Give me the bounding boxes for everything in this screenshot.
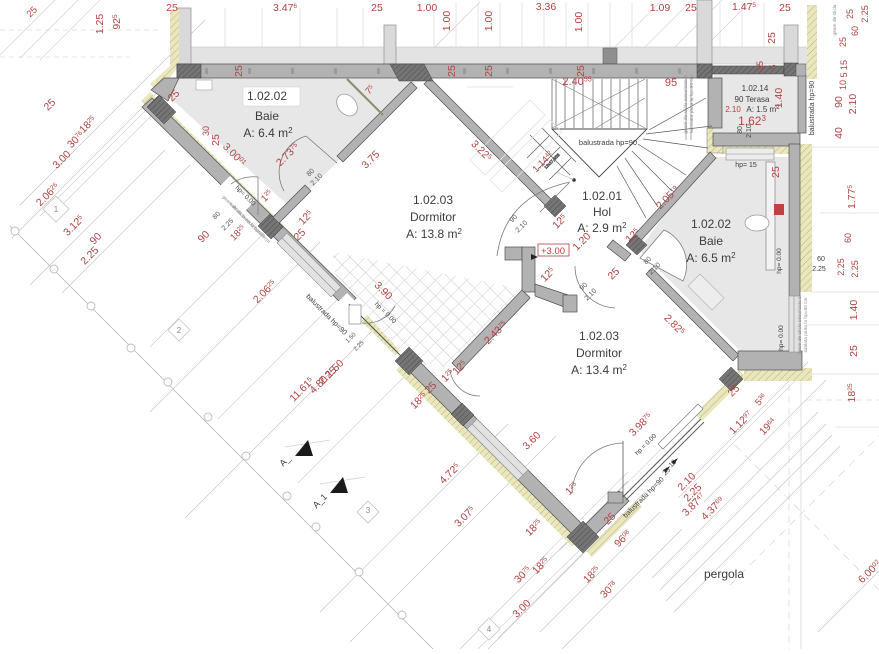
svg-text:A: 6.4 m2: A: 6.4 m2: [243, 126, 293, 140]
svg-text:25: 25: [838, 37, 848, 47]
svg-text:1.02.02: 1.02.02: [691, 217, 731, 231]
svg-text:sablata pana la hp=90 cm: sablata pana la hp=90 cm: [803, 297, 809, 352]
svg-text:balustrada hp=90: balustrada hp=90: [579, 138, 637, 147]
svg-text:1.25: 1.25: [94, 14, 106, 35]
svg-text:Baie: Baie: [255, 109, 279, 123]
svg-text:1.02.03: 1.02.03: [579, 329, 619, 343]
svg-text:60: 60: [850, 26, 860, 36]
svg-text:1.00: 1.00: [573, 12, 585, 33]
svg-text:geam de sticla securizata si: geam de sticla securizata si: [683, 75, 689, 134]
svg-text:Baie: Baie: [699, 234, 723, 248]
svg-text:95: 95: [665, 77, 677, 89]
svg-text:60: 60: [843, 233, 853, 243]
svg-text:2.10: 2.10: [847, 94, 859, 115]
svg-text:+3.00: +3.00: [541, 246, 565, 257]
svg-text:2.10: 2.10: [725, 105, 741, 114]
svg-text:1.00: 1.00: [441, 11, 453, 32]
svg-text:40: 40: [833, 127, 845, 139]
svg-text:1: 1: [54, 205, 59, 214]
svg-text:2.25: 2.25: [860, 5, 870, 23]
svg-text:pergola: pergola: [704, 567, 744, 581]
svg-text:1.00: 1.00: [417, 2, 438, 14]
svg-text:25: 25: [766, 32, 778, 44]
svg-text:5: 5: [768, 64, 778, 69]
svg-text:1.02.02: 1.02.02: [247, 89, 287, 103]
svg-text:A: 2.9 m2: A: 2.9 m2: [577, 221, 627, 235]
svg-text:25: 25: [210, 134, 222, 146]
svg-text:25: 25: [446, 65, 458, 77]
svg-text:laminata pana la hp=90 cm: laminata pana la hp=90 cm: [689, 75, 695, 133]
svg-text:balustrada hp=90: balustrada hp=90: [809, 81, 816, 135]
svg-text:3.36: 3.36: [536, 1, 557, 13]
svg-text:hp= 0.00: hp= 0.00: [778, 325, 785, 351]
svg-text:5: 5: [839, 72, 849, 77]
svg-text:1.02.14: 1.02.14: [742, 84, 769, 93]
svg-text:15: 15: [839, 60, 849, 70]
svg-text:90 Terasa: 90 Terasa: [735, 95, 771, 104]
svg-text:Dormitor: Dormitor: [576, 346, 622, 360]
svg-text:2.25: 2.25: [836, 258, 846, 276]
svg-text:2: 2: [177, 326, 182, 335]
svg-text:10: 10: [838, 80, 848, 90]
svg-text:2.10: 2.10: [746, 124, 753, 138]
svg-text:2.25: 2.25: [812, 266, 826, 273]
svg-text:1.09: 1.09: [650, 2, 671, 14]
svg-text:A: 13.4 m2: A: 13.4 m2: [571, 363, 627, 377]
svg-text:25: 25: [779, 2, 791, 14]
svg-text:geam de sticla: geam de sticla: [832, 4, 838, 35]
svg-text:90: 90: [833, 96, 845, 108]
svg-text:hp= 15: hp= 15: [735, 162, 757, 169]
svg-text:1.40: 1.40: [848, 300, 860, 321]
svg-text:1.02.01: 1.02.01: [582, 189, 622, 203]
svg-text:A: 6.5 m2: A: 6.5 m2: [686, 251, 736, 265]
svg-text:25: 25: [233, 65, 245, 77]
svg-text:25: 25: [371, 2, 383, 14]
svg-text:25: 25: [166, 2, 178, 14]
svg-text:Hol: Hol: [593, 205, 611, 219]
svg-text:15: 15: [755, 61, 765, 71]
svg-text:1.00: 1.00: [483, 11, 495, 32]
svg-text:25: 25: [848, 345, 860, 357]
svg-text:4: 4: [487, 625, 492, 634]
svg-text:1.02.03: 1.02.03: [413, 193, 453, 207]
svg-text:geam de sticla securizata si: geam de sticla securizata si: [797, 296, 803, 355]
svg-text:A: 13.8 m2: A: 13.8 m2: [406, 227, 462, 241]
svg-text:2.25: 2.25: [850, 260, 860, 278]
svg-text:25: 25: [483, 65, 495, 77]
svg-text:A: 1.5 m2: A: 1.5 m2: [746, 105, 780, 114]
svg-text:3: 3: [366, 506, 371, 515]
svg-text:hp= 0.00: hp= 0.00: [776, 248, 783, 274]
svg-text:Dormitor: Dormitor: [410, 210, 456, 224]
svg-text:25: 25: [770, 166, 782, 178]
svg-text:25: 25: [845, 9, 855, 19]
svg-text:80: 80: [737, 126, 744, 134]
svg-text:25: 25: [685, 2, 697, 14]
svg-text:60: 60: [817, 256, 825, 263]
